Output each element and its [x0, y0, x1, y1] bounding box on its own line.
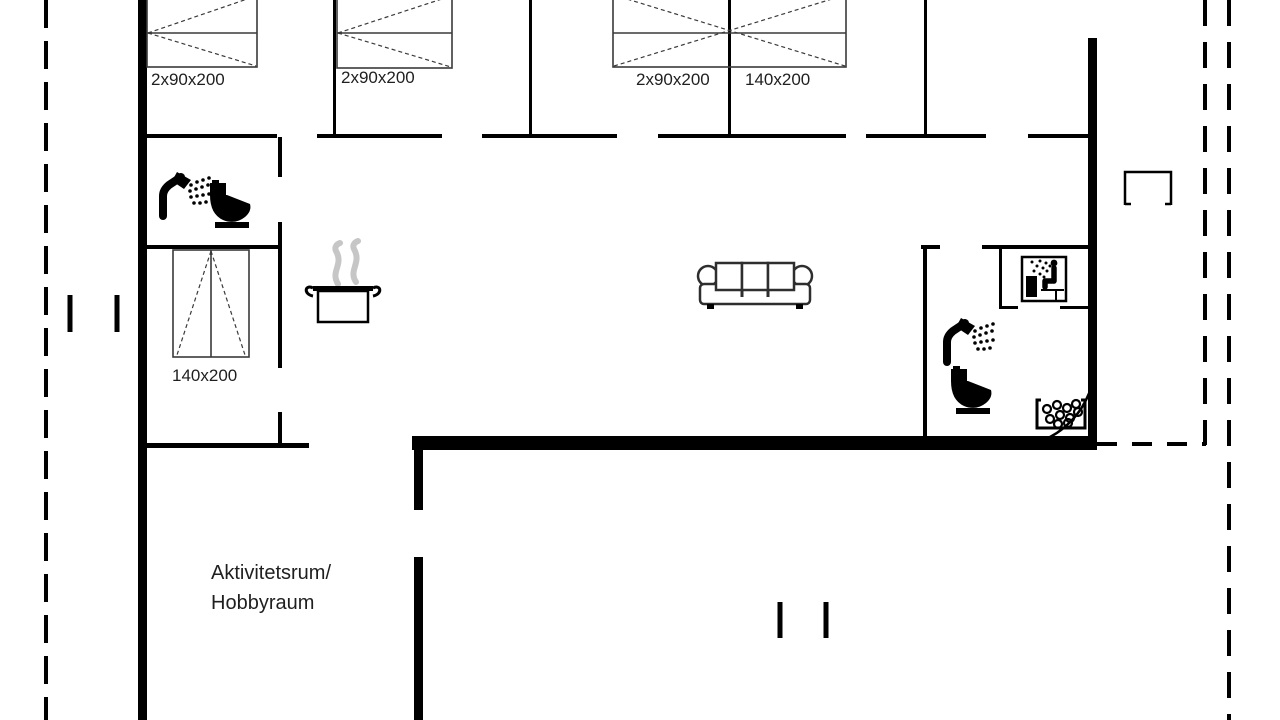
bed-size-label-3: 2x90x200	[636, 70, 710, 90]
floor-plan-drawing	[0, 0, 1280, 720]
bed-size-label-4: 140x200	[745, 70, 810, 90]
activity-room-label: Aktivitetsrum/ Hobbyraum	[211, 558, 331, 618]
toilet-icon-2	[951, 366, 991, 414]
steam-icon	[335, 241, 358, 284]
entrance-step-marker	[1125, 172, 1171, 205]
sofa-icon	[698, 263, 812, 309]
sauna-icon	[1022, 257, 1066, 301]
bed-size-label-1: 2x90x200	[151, 70, 225, 90]
bed-size-label-5: 140x200	[172, 366, 237, 386]
cooking-pot-icon	[306, 241, 380, 322]
shower-icon	[163, 172, 211, 216]
bed-symbol-2	[337, 0, 452, 68]
bed-size-label-2: 2x90x200	[341, 68, 415, 88]
boundary-opening-ticks	[70, 295, 826, 638]
floor-plan: 2x90x200 2x90x200 2x90x200 140x200 140x2…	[0, 0, 1280, 720]
bed-symbol-1	[147, 0, 257, 67]
shower-icon-2	[947, 318, 995, 362]
activity-room-label-line2: Hobbyraum	[211, 588, 331, 618]
bed-symbol-5	[173, 250, 249, 357]
toilet-icon	[210, 180, 250, 228]
activity-room-label-line1: Aktivitetsrum/	[211, 558, 331, 588]
